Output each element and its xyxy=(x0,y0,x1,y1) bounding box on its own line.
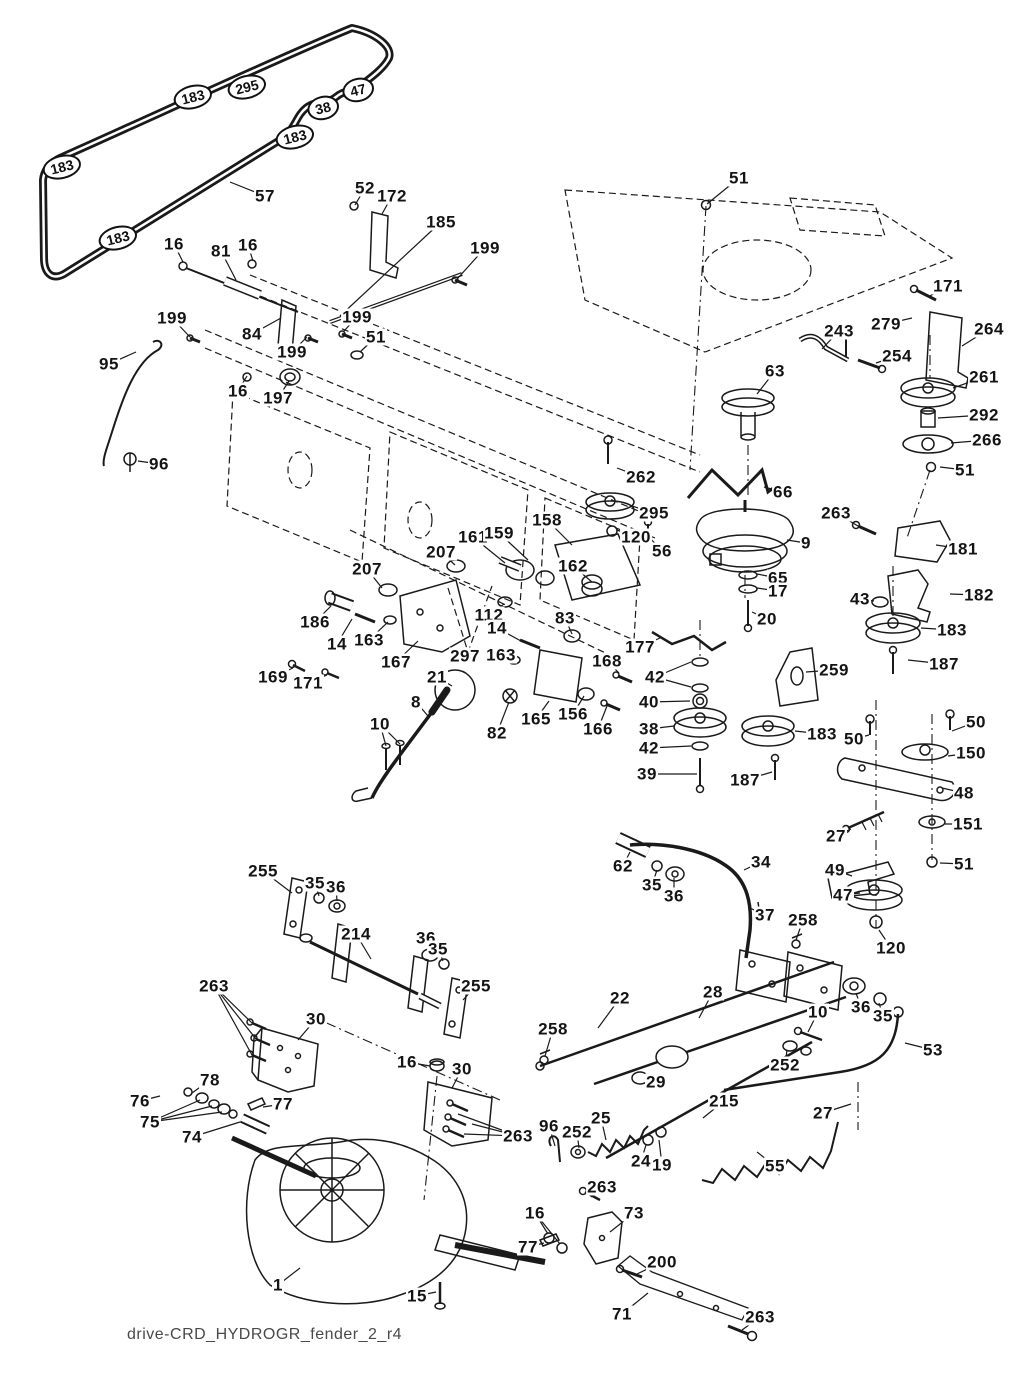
part-label-95: 95 xyxy=(98,356,120,373)
part-label-279: 279 xyxy=(870,316,902,333)
part-label-74: 74 xyxy=(181,1129,203,1146)
part-label-215: 215 xyxy=(708,1093,740,1110)
part-label-199: 199 xyxy=(276,344,308,361)
part-label-34: 34 xyxy=(750,854,772,871)
part-label-264: 264 xyxy=(973,321,1005,338)
part-label-181: 181 xyxy=(947,541,979,558)
part-label-29: 29 xyxy=(645,1074,667,1091)
part-label-51: 51 xyxy=(728,170,750,187)
part-label-1: 1 xyxy=(272,1277,284,1294)
part-label-16: 16 xyxy=(237,237,259,254)
part-label-17: 17 xyxy=(767,583,789,600)
part-label-292: 292 xyxy=(968,407,1000,424)
part-label-252: 252 xyxy=(561,1124,593,1141)
part-label-83: 83 xyxy=(554,610,576,627)
part-label-27: 27 xyxy=(825,828,847,845)
part-label-81: 81 xyxy=(210,243,232,260)
part-label-197: 197 xyxy=(262,390,294,407)
part-label-252: 252 xyxy=(769,1057,801,1074)
part-label-35: 35 xyxy=(641,877,663,894)
part-label-20: 20 xyxy=(756,611,778,628)
part-label-207: 207 xyxy=(425,544,457,561)
part-label-9: 9 xyxy=(800,535,812,552)
parts-diagram-page: 5752172185199511681161998419919951951619… xyxy=(0,0,1024,1386)
part-label-27: 27 xyxy=(812,1105,834,1122)
part-label-52: 52 xyxy=(354,180,376,197)
part-label-185: 185 xyxy=(425,214,457,231)
part-label-71: 71 xyxy=(611,1306,633,1323)
part-label-199: 199 xyxy=(341,309,373,326)
part-label-162: 162 xyxy=(557,558,589,575)
part-label-183: 183 xyxy=(936,622,968,639)
part-label-263: 263 xyxy=(744,1309,776,1326)
part-label-120: 120 xyxy=(620,529,652,546)
part-label-169: 169 xyxy=(257,669,289,686)
part-label-258: 258 xyxy=(537,1021,569,1038)
part-label-243: 243 xyxy=(823,323,855,340)
belt-badge-183: 183 xyxy=(40,151,84,184)
part-label-159: 159 xyxy=(483,525,515,542)
part-label-168: 168 xyxy=(591,653,623,670)
part-label-187: 187 xyxy=(928,656,960,673)
part-label-16: 16 xyxy=(227,383,249,400)
part-label-57: 57 xyxy=(254,188,276,205)
part-label-28: 28 xyxy=(702,984,724,1001)
part-label-8: 8 xyxy=(410,694,422,711)
part-label-295: 295 xyxy=(638,505,670,522)
part-label-73: 73 xyxy=(623,1205,645,1222)
part-label-16: 16 xyxy=(524,1205,546,1222)
part-label-16: 16 xyxy=(396,1054,418,1071)
part-label-186: 186 xyxy=(299,614,331,631)
part-label-35: 35 xyxy=(427,941,449,958)
drawing-title: drive-CRD_HYDROGR_fender_2_r4 xyxy=(127,1326,402,1344)
part-label-36: 36 xyxy=(850,999,872,1016)
part-label-55: 55 xyxy=(764,1158,786,1175)
part-label-297: 297 xyxy=(449,648,481,665)
part-label-76: 76 xyxy=(129,1093,151,1110)
part-label-14: 14 xyxy=(486,620,508,637)
part-label-163: 163 xyxy=(353,632,385,649)
part-label-77: 77 xyxy=(517,1239,539,1256)
part-label-262: 262 xyxy=(625,469,657,486)
part-label-39: 39 xyxy=(636,766,658,783)
part-label-53: 53 xyxy=(922,1042,944,1059)
part-label-172: 172 xyxy=(376,188,408,205)
part-label-48: 48 xyxy=(953,785,975,802)
part-label-171: 171 xyxy=(292,675,324,692)
part-label-182: 182 xyxy=(963,587,995,604)
part-label-19: 19 xyxy=(651,1157,673,1174)
belt-badge-47: 47 xyxy=(340,75,376,106)
part-label-78: 78 xyxy=(199,1072,221,1089)
part-label-259: 259 xyxy=(818,662,850,679)
part-label-77: 77 xyxy=(272,1096,294,1113)
part-label-10: 10 xyxy=(369,716,391,733)
part-label-261: 261 xyxy=(968,369,1000,386)
part-label-51: 51 xyxy=(365,329,387,346)
part-label-96: 96 xyxy=(538,1118,560,1135)
part-label-266: 266 xyxy=(971,432,1003,449)
part-labels-layer: 5752172185199511681161998419919951951619… xyxy=(0,0,1024,1386)
part-label-263: 263 xyxy=(586,1179,618,1196)
belt-badge-38: 38 xyxy=(305,93,341,124)
part-label-36: 36 xyxy=(663,888,685,905)
part-label-82: 82 xyxy=(486,725,508,742)
part-label-50: 50 xyxy=(843,731,865,748)
part-label-16: 16 xyxy=(163,236,185,253)
part-label-96: 96 xyxy=(148,456,170,473)
part-label-50: 50 xyxy=(965,714,987,731)
part-label-199: 199 xyxy=(469,240,501,257)
part-label-75: 75 xyxy=(139,1114,161,1131)
part-label-35: 35 xyxy=(872,1008,894,1025)
part-label-42: 42 xyxy=(638,740,660,757)
part-label-165: 165 xyxy=(520,711,552,728)
part-label-10: 10 xyxy=(807,1004,829,1021)
belt-badge-183: 183 xyxy=(171,81,215,114)
part-label-183: 183 xyxy=(806,726,838,743)
part-label-150: 150 xyxy=(955,745,987,762)
part-label-30: 30 xyxy=(305,1011,327,1028)
part-label-51: 51 xyxy=(953,856,975,873)
part-label-200: 200 xyxy=(646,1254,678,1271)
part-label-167: 167 xyxy=(380,654,412,671)
part-label-199: 199 xyxy=(156,310,188,327)
part-label-14: 14 xyxy=(326,636,348,653)
part-label-263: 263 xyxy=(198,978,230,995)
part-label-214: 214 xyxy=(340,926,372,943)
part-label-177: 177 xyxy=(624,639,656,656)
part-label-47: 47 xyxy=(832,887,854,904)
part-label-25: 25 xyxy=(590,1110,612,1127)
part-label-171: 171 xyxy=(932,278,964,295)
part-label-30: 30 xyxy=(451,1061,473,1078)
part-label-187: 187 xyxy=(729,772,761,789)
belt-badge-183: 183 xyxy=(273,121,317,154)
part-label-49: 49 xyxy=(824,862,846,879)
part-label-35: 35 xyxy=(304,875,326,892)
part-label-258: 258 xyxy=(787,912,819,929)
part-label-40: 40 xyxy=(638,694,660,711)
part-label-43: 43 xyxy=(849,591,871,608)
part-label-51: 51 xyxy=(954,462,976,479)
part-label-255: 255 xyxy=(247,863,279,880)
part-label-21: 21 xyxy=(426,669,448,686)
part-label-151: 151 xyxy=(952,816,984,833)
part-label-158: 158 xyxy=(531,512,563,529)
belt-badge-183: 183 xyxy=(96,222,140,255)
part-label-63: 63 xyxy=(764,363,786,380)
part-label-15: 15 xyxy=(406,1288,428,1305)
part-label-42: 42 xyxy=(644,669,666,686)
part-label-163: 163 xyxy=(485,647,517,664)
part-label-166: 166 xyxy=(582,721,614,738)
part-label-66: 66 xyxy=(772,484,794,501)
part-label-38: 38 xyxy=(638,721,660,738)
part-label-255: 255 xyxy=(460,978,492,995)
part-label-37: 37 xyxy=(754,907,776,924)
part-label-84: 84 xyxy=(241,326,263,343)
part-label-56: 56 xyxy=(651,543,673,560)
part-label-22: 22 xyxy=(609,990,631,1007)
part-label-36: 36 xyxy=(325,879,347,896)
part-label-62: 62 xyxy=(612,858,634,875)
part-label-207: 207 xyxy=(351,561,383,578)
part-label-263: 263 xyxy=(502,1128,534,1145)
part-label-24: 24 xyxy=(630,1153,652,1170)
part-label-120: 120 xyxy=(875,940,907,957)
belt-badge-295: 295 xyxy=(225,71,269,104)
part-label-263: 263 xyxy=(820,505,852,522)
part-label-254: 254 xyxy=(881,348,913,365)
